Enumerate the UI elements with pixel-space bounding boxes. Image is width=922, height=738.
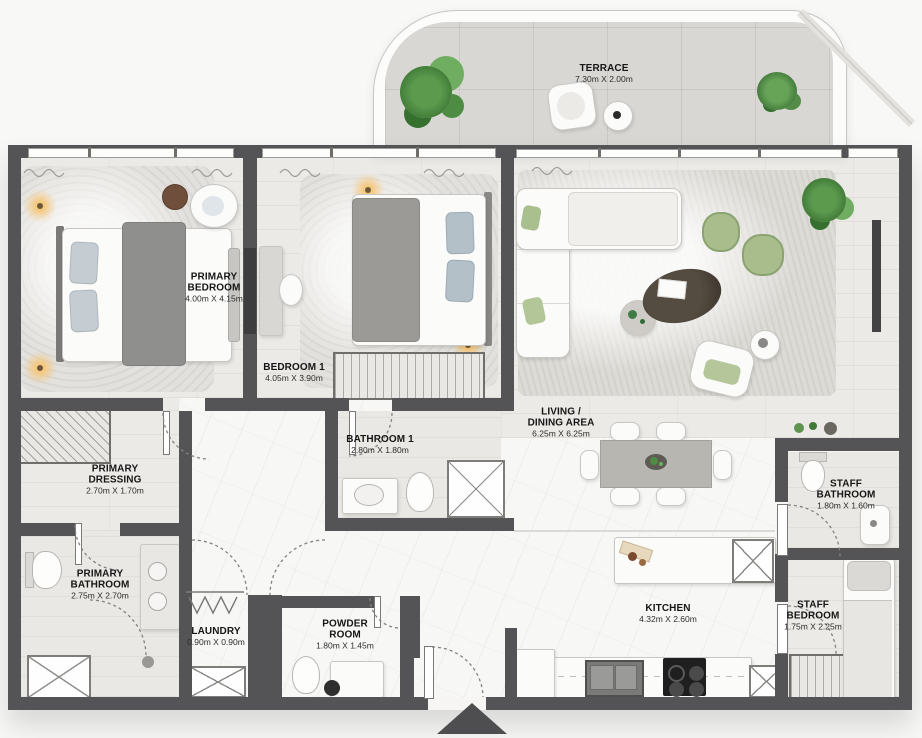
window-mullion (416, 147, 419, 157)
door-leaf (777, 504, 788, 556)
floor-plan: TERRACE 7.30m X 2.00m PRIMARY BEDROOM 4.… (0, 0, 922, 738)
wall-segment (21, 398, 163, 411)
window (262, 148, 496, 158)
terrace-table-decor (613, 111, 621, 119)
wall-segment (21, 523, 75, 536)
door-leaf (163, 411, 170, 455)
wall-segment (775, 654, 788, 697)
door-leaf (75, 523, 82, 565)
window (28, 148, 234, 158)
window-mullion (88, 147, 91, 157)
window-mullion (678, 148, 681, 157)
wall-segment (775, 438, 788, 502)
wall-segment (788, 548, 912, 560)
window (848, 148, 898, 158)
tv-console (244, 248, 256, 334)
wall-segment (282, 596, 374, 608)
wall-segment (248, 595, 282, 710)
door-leaf (424, 646, 434, 699)
plant (400, 66, 452, 118)
window-mullion (758, 148, 761, 157)
wall-segment (325, 411, 338, 518)
door-leaf (374, 596, 381, 628)
wall-segment (400, 596, 420, 658)
wall-segment (775, 438, 912, 451)
wall-segment (179, 411, 192, 531)
wall-segment (501, 158, 514, 405)
wall-segment (325, 518, 514, 531)
wall-segment (505, 628, 517, 697)
wall-segment (179, 523, 192, 710)
plant (757, 72, 797, 110)
tv-panel (872, 220, 881, 332)
door-leaf (777, 604, 788, 654)
door-leaf (349, 411, 356, 455)
lounge-chair-cushion (557, 92, 585, 120)
window-mullion (330, 147, 333, 157)
wall-segment (775, 554, 788, 602)
wall-segment (205, 398, 349, 411)
window-mullion (598, 148, 601, 157)
entrance-arrow-icon (437, 703, 507, 734)
wall-segment (392, 398, 514, 411)
window-mullion (174, 147, 177, 157)
